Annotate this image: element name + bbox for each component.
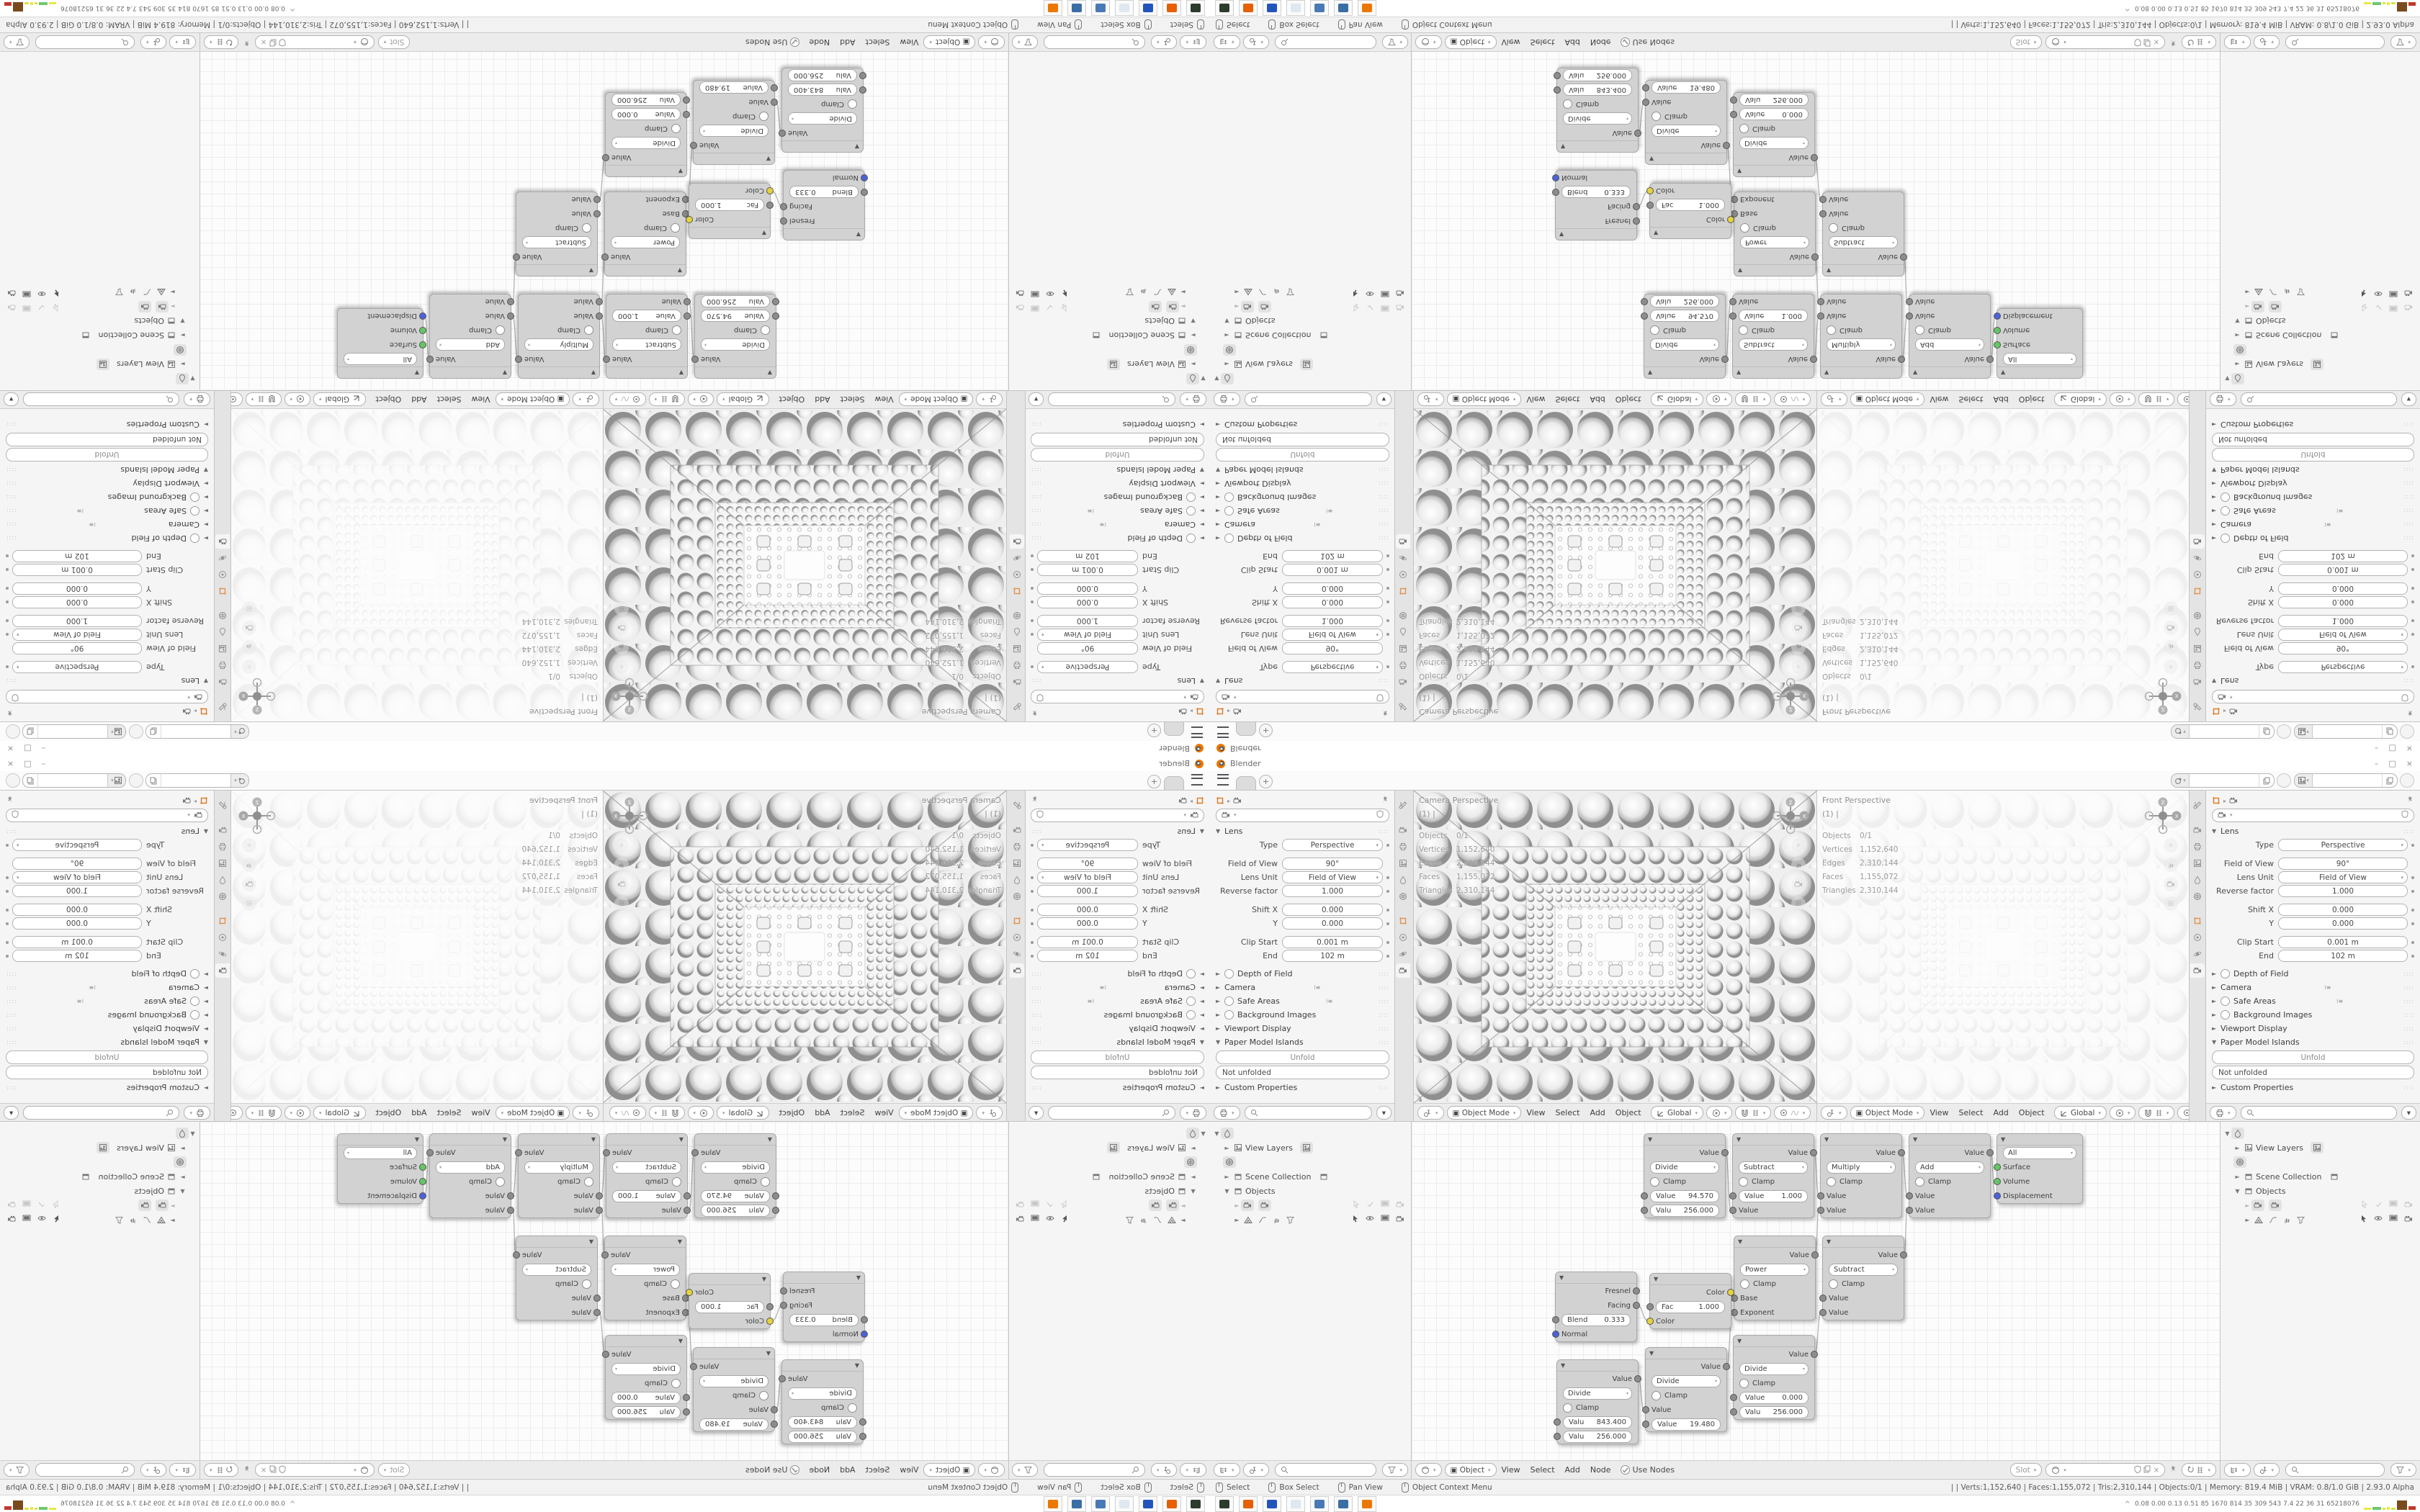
- viewport-menu-add[interactable]: Add: [411, 1108, 426, 1117]
- animate-dot[interactable]: [2411, 666, 2414, 669]
- node-collapse-arrow[interactable]: ▼: [1821, 366, 1901, 378]
- outliner-camera-object-row[interactable]: ►: [3, 1198, 197, 1212]
- zoom-button[interactable]: +: [1791, 838, 1806, 852]
- animate-dot[interactable]: [6, 666, 9, 669]
- clamp-checkbox[interactable]: [1739, 125, 1749, 134]
- clamp-checkbox[interactable]: [671, 1379, 681, 1388]
- node-collapse-arrow[interactable]: ▼: [605, 264, 686, 276]
- pivot-point-selector[interactable]: ▾: [284, 392, 311, 406]
- node-collapse-arrow[interactable]: ▼: [1733, 1134, 1814, 1146]
- camera-datablock-selector[interactable]: ▾: [2212, 690, 2414, 704]
- input-socket[interactable]: [1552, 189, 1559, 196]
- input-socket[interactable]: [1906, 1192, 1913, 1200]
- taskbar-app-firefox[interactable]: [1239, 0, 1258, 16]
- lens-field[interactable]: Perspective▾: [1037, 839, 1138, 851]
- output-socket[interactable]: [515, 1149, 522, 1156]
- panel-depth-of-field[interactable]: ► Depth of Field::::: [2212, 531, 2414, 545]
- properties-tab-drop[interactable]: [1010, 625, 1024, 639]
- clamp-checkbox[interactable]: [671, 1279, 680, 1289]
- panel-camera[interactable]: ► Camera⁞≡::::: [6, 981, 208, 994]
- scene-selector[interactable]: ▾: [2171, 724, 2275, 739]
- value-field[interactable]: Blend0.333: [789, 1314, 859, 1326]
- animate-dot[interactable]: [1386, 955, 1389, 958]
- properties-editor-type-button[interactable]: ▾: [184, 392, 210, 406]
- output-socket[interactable]: [691, 1149, 699, 1156]
- panel-safe-areas[interactable]: ► Safe Areas⁞≡::::: [1216, 994, 1389, 1008]
- object-breadcrumb-icon[interactable]: [1196, 707, 1204, 716]
- node-collapse-arrow[interactable]: ▼: [1646, 153, 1726, 164]
- properties-editor-type-button[interactable]: ▾: [1214, 1106, 1240, 1120]
- output-socket[interactable]: [691, 356, 699, 363]
- panel-background-images[interactable]: ► Background Images::::: [1216, 490, 1389, 504]
- scene-name-field[interactable]: [161, 725, 230, 738]
- outliner-display-mode-button[interactable]: ▾: [169, 35, 196, 49]
- shader-node-5[interactable]: ▼ValuePower▾ClampBaseExponent: [1734, 192, 1816, 276]
- outliner-scene-row[interactable]: ▼: [1213, 1126, 1409, 1140]
- value-field[interactable]: Valu256.000: [788, 70, 857, 82]
- panel-custom-properties[interactable]: ►Custom Properties::::: [6, 1081, 208, 1094]
- fake-user-shield-icon[interactable]: [2401, 810, 2408, 820]
- input-socket[interactable]: [1731, 1309, 1738, 1316]
- viewport-camera[interactable]: Camera Perspective (1) | Objects0/1Verti…: [1414, 390, 1817, 721]
- outliner-mesh-object-row[interactable]: ►: [3, 1212, 197, 1227]
- pin-icon[interactable]: [2169, 37, 2177, 48]
- value-field[interactable]: Fac1.000: [1656, 199, 1725, 212]
- close-button[interactable]: ×: [2406, 744, 2413, 753]
- object-breadcrumb-icon[interactable]: [1216, 796, 1224, 805]
- lens-field[interactable]: 0.000: [1037, 596, 1138, 608]
- close-button[interactable]: ×: [7, 759, 14, 768]
- node-collapse-arrow[interactable]: ▼: [1734, 1336, 1814, 1347]
- node-collapse-arrow[interactable]: ▼: [1646, 1348, 1726, 1359]
- properties-tab-object-data-camera[interactable]: [1396, 534, 1410, 549]
- output-socket[interactable]: [1986, 356, 1994, 363]
- properties-tab-object-data-camera[interactable]: [215, 963, 230, 978]
- taskbar-app-blender[interactable]: [1044, 1496, 1062, 1512]
- clamp-checkbox[interactable]: [496, 326, 505, 336]
- output-socket[interactable]: [601, 1251, 609, 1259]
- node-collapse-arrow[interactable]: ▼: [1997, 366, 2082, 378]
- viewport-front[interactable]: Front Perspective (1) | Objects0/1Vertic…: [230, 791, 603, 1122]
- taskbar-app-terminal[interactable]: [1186, 0, 1205, 16]
- lens-field[interactable]: 0.000: [1037, 904, 1138, 916]
- outliner-filter-object-button[interactable]: ▾: [2254, 1463, 2280, 1477]
- animate-dot[interactable]: [6, 890, 9, 893]
- unlink-material-icon[interactable]: ×: [2153, 38, 2159, 47]
- panel-checkbox[interactable]: [1186, 492, 1196, 502]
- panel-custom-properties[interactable]: ►Custom Properties::::: [1216, 418, 1389, 431]
- snap-toggle[interactable]: ▾: [246, 1106, 282, 1120]
- lens-field[interactable]: 1.000: [12, 885, 142, 897]
- lens-field[interactable]: Field of View▾: [1282, 629, 1383, 641]
- camera-data-breadcrumb-icon[interactable]: [1178, 796, 1187, 805]
- input-socket[interactable]: [593, 210, 601, 217]
- node-operation-select[interactable]: Divide▾: [1563, 1387, 1632, 1400]
- input-socket[interactable]: [859, 72, 866, 79]
- properties-tab-object-data-camera[interactable]: [1396, 963, 1410, 978]
- viewport-menu-add[interactable]: Add: [815, 395, 830, 404]
- node-snapping-toggle[interactable]: ⭮ ▾: [204, 1463, 238, 1477]
- pin-id-icon[interactable]: [1381, 706, 1389, 716]
- value-field[interactable]: Valu256.000: [1739, 1406, 1809, 1418]
- properties-tab-square[interactable]: [1396, 584, 1410, 598]
- viewport-front[interactable]: Front Perspective (1) | Objects0/1Vertic…: [230, 390, 603, 721]
- outliner-filter-dropdown[interactable]: ▾: [1012, 1463, 1038, 1477]
- minimize-button[interactable]: –: [42, 759, 46, 768]
- fake-user-shield-icon[interactable]: [1376, 692, 1384, 702]
- animate-dot[interactable]: [6, 588, 9, 590]
- toggle-grid-button[interactable]: ⊞: [242, 896, 256, 911]
- animate-dot[interactable]: [1386, 922, 1389, 925]
- properties-tab-physics[interactable]: [215, 551, 230, 565]
- taskbar-app-terminal[interactable]: [1215, 1496, 1234, 1512]
- node-snapping-toggle[interactable]: ⭮ ▾: [204, 35, 238, 49]
- value-field[interactable]: Value1.000: [612, 1190, 681, 1202]
- editor-type-button[interactable]: ▾: [1415, 35, 1442, 49]
- node-menu-select[interactable]: Select: [865, 37, 889, 47]
- shader-node-4[interactable]: ▼All▾SurfaceVolumeDisplacement: [337, 1133, 423, 1204]
- shader-node-7[interactable]: ▼FresnelFacingBlend0.333Normal: [783, 1272, 865, 1342]
- input-socket[interactable]: [1642, 1406, 1649, 1413]
- properties-tab-physics[interactable]: [2190, 551, 2205, 565]
- properties-editor-type-button[interactable]: ▾: [1214, 392, 1240, 406]
- output-socket[interactable]: [1721, 356, 1729, 363]
- viewport-menu-add[interactable]: Add: [411, 395, 426, 404]
- panel-depth-of-field[interactable]: ► Depth of Field::::: [1216, 531, 1389, 545]
- properties-tab-printer[interactable]: [1396, 658, 1410, 672]
- viewport-menu-object[interactable]: Object: [779, 395, 805, 404]
- editor-type-button[interactable]: ▾: [573, 1106, 599, 1120]
- outliner-display-mode-button[interactable]: ▾: [1180, 35, 1206, 49]
- input-socket[interactable]: [683, 96, 690, 104]
- animate-dot[interactable]: [1386, 601, 1389, 604]
- taskbar-app-disk64[interactable]: [1263, 1496, 1281, 1512]
- input-socket[interactable]: [1994, 1164, 2001, 1171]
- shader-node-1[interactable]: ▼ValueSubtract▾ClampValue1.000Value: [606, 1133, 688, 1218]
- node-collapse-arrow[interactable]: ▼: [606, 1134, 687, 1146]
- outliner-world-row[interactable]: [3, 1155, 197, 1169]
- input-socket[interactable]: [772, 1207, 779, 1214]
- object-breadcrumb-icon[interactable]: [1216, 707, 1224, 716]
- unfold-button[interactable]: Unfold: [1216, 1050, 1389, 1064]
- panel-viewport-display[interactable]: ► Viewport Display::::: [6, 477, 208, 490]
- camera-data-breadcrumb-icon[interactable]: [182, 707, 191, 716]
- output-socket[interactable]: [1811, 253, 1819, 261]
- value-field[interactable]: Valu256.000: [1563, 1431, 1632, 1443]
- properties-tab-tool[interactable]: [1396, 699, 1410, 714]
- properties-tab-tool[interactable]: [2190, 699, 2205, 714]
- panel-depth-of-field[interactable]: ► Depth of Field::::: [1216, 967, 1389, 981]
- unlink-material-icon[interactable]: ×: [261, 1466, 267, 1475]
- clamp-checkbox[interactable]: [761, 1177, 770, 1187]
- use-nodes-toggle[interactable]: Use Nodes: [1621, 1465, 1675, 1475]
- viewport-menu-view[interactable]: View: [471, 1108, 490, 1117]
- input-socket[interactable]: [1641, 1207, 1648, 1214]
- input-socket[interactable]: [683, 1394, 690, 1401]
- shader-node-9[interactable]: ▼ValueDivide▾ClampValu843.400Valu256.000: [781, 68, 864, 153]
- copy-material-icon[interactable]: [269, 37, 277, 48]
- lens-field[interactable]: 102 m: [2278, 950, 2408, 962]
- panel-depth-of-field[interactable]: ► Depth of Field::::: [2212, 967, 2414, 981]
- animate-dot[interactable]: [2411, 620, 2414, 623]
- topbar-menu-hamburger-icon[interactable]: [1191, 774, 1203, 786]
- node-menu-add[interactable]: Add: [1565, 37, 1580, 47]
- outliner-camera-object-row[interactable]: ►: [2223, 1198, 2417, 1212]
- taskbar-app-image-viewer[interactable]: [1067, 0, 1086, 16]
- outliner-scene-row[interactable]: ▼: [2223, 372, 2417, 386]
- animate-dot[interactable]: [1031, 620, 1034, 623]
- lens-field[interactable]: 90°: [1282, 858, 1383, 870]
- input-socket[interactable]: [1994, 1178, 2001, 1185]
- properties-tab-object-data-camera[interactable]: [1010, 534, 1024, 549]
- object-breadcrumb-icon[interactable]: [200, 707, 208, 716]
- pin-icon[interactable]: [243, 1465, 251, 1475]
- outliner-mesh-object-row[interactable]: ►: [2223, 1212, 2417, 1227]
- camera-data-breadcrumb-icon[interactable]: [1233, 707, 1242, 716]
- input-socket[interactable]: [1730, 111, 1737, 118]
- lens-field[interactable]: 0.001 m: [2278, 936, 2408, 948]
- fake-user-shield-icon[interactable]: [2134, 37, 2141, 48]
- outliner-scene-row[interactable]: ▼: [1011, 1126, 1207, 1140]
- lens-field[interactable]: 0.001 m: [1037, 564, 1138, 576]
- value-field[interactable]: Valu256.000: [1650, 296, 1719, 308]
- outliner-scene-collection-row[interactable]: ►Scene Collection: [1213, 1169, 1409, 1184]
- lens-field[interactable]: 102 m: [2278, 550, 2408, 562]
- pan-hand-button[interactable]: [614, 858, 629, 872]
- fake-user-shield-icon[interactable]: [2134, 1465, 2141, 1475]
- outliner-mesh-object-row[interactable]: ►: [2223, 285, 2417, 300]
- output-socket[interactable]: [1810, 356, 1817, 363]
- animate-dot[interactable]: [2411, 634, 2414, 636]
- taskbar-app-window-switcher[interactable]: [1310, 0, 1329, 16]
- node-collapse-arrow[interactable]: ▼: [694, 1348, 774, 1359]
- properties-tab-image[interactable]: [2190, 642, 2205, 656]
- panel-lens[interactable]: ▼Lens::::: [1216, 824, 1389, 838]
- properties-filter-dropdown[interactable]: ▾: [4, 392, 19, 406]
- animate-dot[interactable]: [2411, 941, 2414, 944]
- properties-tab-physics[interactable]: [2190, 947, 2205, 961]
- properties-tab-printer[interactable]: [2190, 658, 2205, 672]
- output-socket[interactable]: [1898, 1149, 1905, 1156]
- object-breadcrumb-icon[interactable]: [2212, 796, 2220, 805]
- input-socket[interactable]: [419, 1192, 426, 1200]
- fake-user-shield-icon[interactable]: [1376, 810, 1384, 820]
- node-canvas[interactable]: ▼ValueDivide▾ClampValue94.570Valu256.000…: [200, 1122, 1008, 1460]
- node-operation-select[interactable]: Divide▾: [699, 1375, 768, 1387]
- value-field[interactable]: Blend0.333: [1561, 186, 1631, 199]
- camera-datablock-selector[interactable]: ▾: [1216, 690, 1389, 704]
- outliner-mesh-object-row[interactable]: ►: [1213, 1212, 1409, 1227]
- input-socket[interactable]: [1554, 72, 1561, 79]
- output-socket[interactable]: [690, 1363, 697, 1370]
- input-socket[interactable]: [1730, 96, 1737, 104]
- input-socket[interactable]: [1646, 187, 1654, 194]
- node-collapse-arrow[interactable]: ▼: [1821, 1134, 1901, 1146]
- output-socket[interactable]: [515, 356, 522, 363]
- value-field[interactable]: Value0.000: [611, 109, 681, 121]
- node-menu-add[interactable]: Add: [1565, 1465, 1580, 1475]
- properties-tab-object-data-camera[interactable]: [2190, 963, 2205, 978]
- viewport-front[interactable]: Front Perspective (1) | Objects0/1Vertic…: [1817, 390, 2190, 721]
- taskbar-app-window-switcher[interactable]: [1310, 1496, 1329, 1512]
- properties-tab-drop[interactable]: [215, 625, 230, 639]
- clamp-checkbox[interactable]: [672, 1177, 681, 1187]
- view-layer-selector[interactable]: ▾: [2294, 773, 2398, 788]
- view-layer-selector[interactable]: ▾: [22, 773, 126, 788]
- unfold-button[interactable]: Unfold: [1031, 448, 1204, 462]
- node-canvas[interactable]: ▼ValueDivide▾ClampValue94.570Valu256.000…: [1412, 1122, 2220, 1460]
- shader-node-10[interactable]: ▼ValueDivide▾ClampValueValue19.480: [1645, 80, 1727, 165]
- properties-tab-drop[interactable]: [2190, 625, 2205, 639]
- taskbar-app-notepad[interactable]: [1286, 1496, 1305, 1512]
- input-socket[interactable]: [859, 1433, 866, 1440]
- pin-icon[interactable]: [243, 37, 251, 48]
- animate-dot[interactable]: [2411, 922, 2414, 925]
- shader-type-selector[interactable]: ▣ Object▾: [924, 1463, 976, 1477]
- clamp-checkbox[interactable]: [1915, 326, 1924, 336]
- panel-camera[interactable]: ► Camera⁞≡::::: [1216, 981, 1389, 994]
- lens-field[interactable]: 1.000: [12, 615, 142, 627]
- node-menu-view[interactable]: View: [1502, 37, 1520, 47]
- node-collapse-arrow[interactable]: ▼: [1557, 140, 1638, 152]
- add-workspace-button[interactable]: +: [1147, 724, 1161, 737]
- output-socket[interactable]: [1898, 356, 1905, 363]
- viewport-menu-view[interactable]: View: [1930, 1108, 1948, 1117]
- properties-filter-dropdown[interactable]: ▾: [1376, 1106, 1391, 1120]
- fake-user-shield-icon[interactable]: [1036, 692, 1044, 702]
- workspace-tab[interactable]: [1164, 776, 1184, 791]
- taskbar-app-disk64[interactable]: [1139, 1496, 1157, 1512]
- taskbar-app-window-switcher[interactable]: [1091, 1496, 1110, 1512]
- pan-hand-button[interactable]: [614, 640, 629, 654]
- panel-safe-areas[interactable]: ► Safe Areas⁞≡::::: [1031, 504, 1204, 518]
- properties-tab-square[interactable]: [215, 914, 230, 928]
- panel-camera[interactable]: ► Camera⁞≡::::: [2212, 518, 2414, 531]
- lens-field[interactable]: Field of View▾: [1282, 871, 1383, 883]
- properties-tab-tool[interactable]: [215, 798, 230, 813]
- snap-toggle[interactable]: ▾: [1735, 1106, 1771, 1120]
- mode-selector[interactable]: ▣ Object Mode▾: [1447, 1106, 1522, 1120]
- editor-type-button[interactable]: ▾: [1415, 1463, 1442, 1477]
- shader-type-selector[interactable]: ▣ Object▾: [1445, 35, 1497, 49]
- node-operation-select[interactable]: Subtract▾: [1739, 1161, 1808, 1174]
- value-field[interactable]: Value19.480: [699, 82, 768, 94]
- shader-node-11[interactable]: ▼ValueDivide▾ClampValue0.000Valu256.000: [1733, 92, 1815, 177]
- shader-node-6[interactable]: ▼ValueSubtract▾ClampValueValue: [516, 192, 598, 276]
- scene-copy-icon[interactable]: [146, 774, 161, 787]
- pan-hand-button[interactable]: [1791, 640, 1806, 654]
- lens-field[interactable]: 0.000: [2278, 582, 2408, 595]
- copy-material-icon[interactable]: [269, 1465, 277, 1475]
- clamp-checkbox[interactable]: [671, 224, 680, 233]
- pin-id-icon[interactable]: [2406, 706, 2414, 716]
- input-socket[interactable]: [1641, 312, 1648, 320]
- taskbar-app-firefox[interactable]: [1162, 0, 1181, 16]
- viewport-menu-object[interactable]: Object: [2019, 1108, 2045, 1117]
- use-nodes-toggle[interactable]: Use Nodes: [745, 37, 800, 47]
- object-breadcrumb-icon[interactable]: [1196, 796, 1204, 805]
- shader-node-5[interactable]: ▼ValuePower▾ClampBaseExponent: [1734, 1236, 1816, 1320]
- clamp-checkbox[interactable]: [671, 125, 681, 134]
- node-snapping-toggle[interactable]: ⭮ ▾: [2182, 35, 2216, 49]
- camera-view-button[interactable]: [1791, 877, 1806, 891]
- clamp-checkbox[interactable]: [1739, 1379, 1749, 1388]
- taskbar-app-terminal[interactable]: [1186, 1496, 1205, 1512]
- animate-dot[interactable]: [1031, 890, 1034, 893]
- clamp-checkbox[interactable]: [1915, 1177, 1924, 1187]
- outliner-search-input[interactable]: [35, 35, 135, 49]
- input-socket[interactable]: [419, 1164, 426, 1171]
- properties-tab-square[interactable]: [1010, 584, 1024, 598]
- object-breadcrumb-icon[interactable]: [2212, 707, 2220, 716]
- pin-id-icon[interactable]: [2406, 796, 2414, 806]
- editor-type-button[interactable]: ▾: [976, 1106, 1003, 1120]
- input-socket[interactable]: [1552, 174, 1559, 181]
- panel-checkbox[interactable]: [1224, 969, 1234, 978]
- snap-toggle[interactable]: ▾: [649, 1106, 685, 1120]
- minimize-button[interactable]: –: [2375, 744, 2379, 753]
- animate-dot[interactable]: [6, 620, 9, 623]
- output-socket[interactable]: [1723, 1363, 1730, 1370]
- properties-tab-camera[interactable]: [1396, 823, 1410, 837]
- camera-data-breadcrumb-icon[interactable]: [2229, 707, 2238, 716]
- animate-dot[interactable]: [1386, 890, 1389, 893]
- panel-paper-model-islands[interactable]: ▼Paper Model Islands::::: [1031, 463, 1204, 477]
- properties-tab-camera[interactable]: [1396, 675, 1410, 689]
- animate-dot[interactable]: [1031, 588, 1034, 590]
- viewport-menu-object[interactable]: Object: [779, 1108, 805, 1117]
- taskbar-app-blender[interactable]: [1358, 1496, 1376, 1512]
- properties-tab-dot[interactable]: [2190, 930, 2205, 945]
- panel-custom-properties[interactable]: ►Custom Properties::::: [1031, 418, 1204, 431]
- properties-filter-dropdown[interactable]: ▾: [4, 1106, 19, 1120]
- lens-field[interactable]: 90°: [12, 642, 142, 654]
- properties-tab-camera[interactable]: [2190, 675, 2205, 689]
- pin-id-icon[interactable]: [1381, 796, 1389, 806]
- taskbar-app-notepad[interactable]: [1115, 1496, 1134, 1512]
- unfold-button[interactable]: Unfold: [2212, 1050, 2414, 1064]
- zoom-button[interactable]: +: [614, 838, 629, 852]
- panel-paper-model-islands[interactable]: ▼Paper Model Islands::::: [1216, 1035, 1389, 1049]
- panel-lens[interactable]: ▼Lens::::: [1216, 674, 1389, 688]
- panel-custom-properties[interactable]: ►Custom Properties::::: [6, 418, 208, 431]
- maximize-button[interactable]: □: [2388, 759, 2396, 768]
- outliner-scene-row[interactable]: ▼: [3, 1126, 197, 1140]
- node-operation-select[interactable]: Subtract▾: [612, 339, 681, 351]
- value-field[interactable]: Value94.570: [1650, 1190, 1719, 1202]
- properties-search-input[interactable]: [1245, 1106, 1372, 1120]
- input-socket[interactable]: [1730, 1408, 1737, 1416]
- copy-material-icon[interactable]: [2143, 1465, 2151, 1475]
- topbar-menu-hamburger-icon[interactable]: [1191, 726, 1203, 738]
- panel-checkbox[interactable]: [1224, 506, 1234, 516]
- snap-toggle[interactable]: ▾: [2138, 1106, 2174, 1120]
- value-field[interactable]: Value0.000: [611, 1392, 681, 1404]
- node-collapse-arrow[interactable]: ▼: [689, 1274, 770, 1285]
- node-operation-select[interactable]: Add▾: [436, 1161, 505, 1174]
- node-menu-add[interactable]: Add: [840, 1465, 855, 1475]
- lens-field[interactable]: 0.001 m: [1282, 564, 1383, 576]
- scene-name-field[interactable]: [161, 774, 230, 787]
- scene-copy-icon[interactable]: [2259, 774, 2274, 787]
- output-socket[interactable]: [1811, 1251, 1819, 1259]
- lens-field[interactable]: Perspective▾: [12, 661, 142, 673]
- properties-editor-type-button[interactable]: ▾: [184, 1106, 210, 1120]
- outliner-world-row[interactable]: [2223, 1155, 2417, 1169]
- properties-tab-globe[interactable]: [2190, 608, 2205, 623]
- clamp-checkbox[interactable]: [496, 1177, 505, 1187]
- lens-field[interactable]: 0.000: [12, 596, 142, 608]
